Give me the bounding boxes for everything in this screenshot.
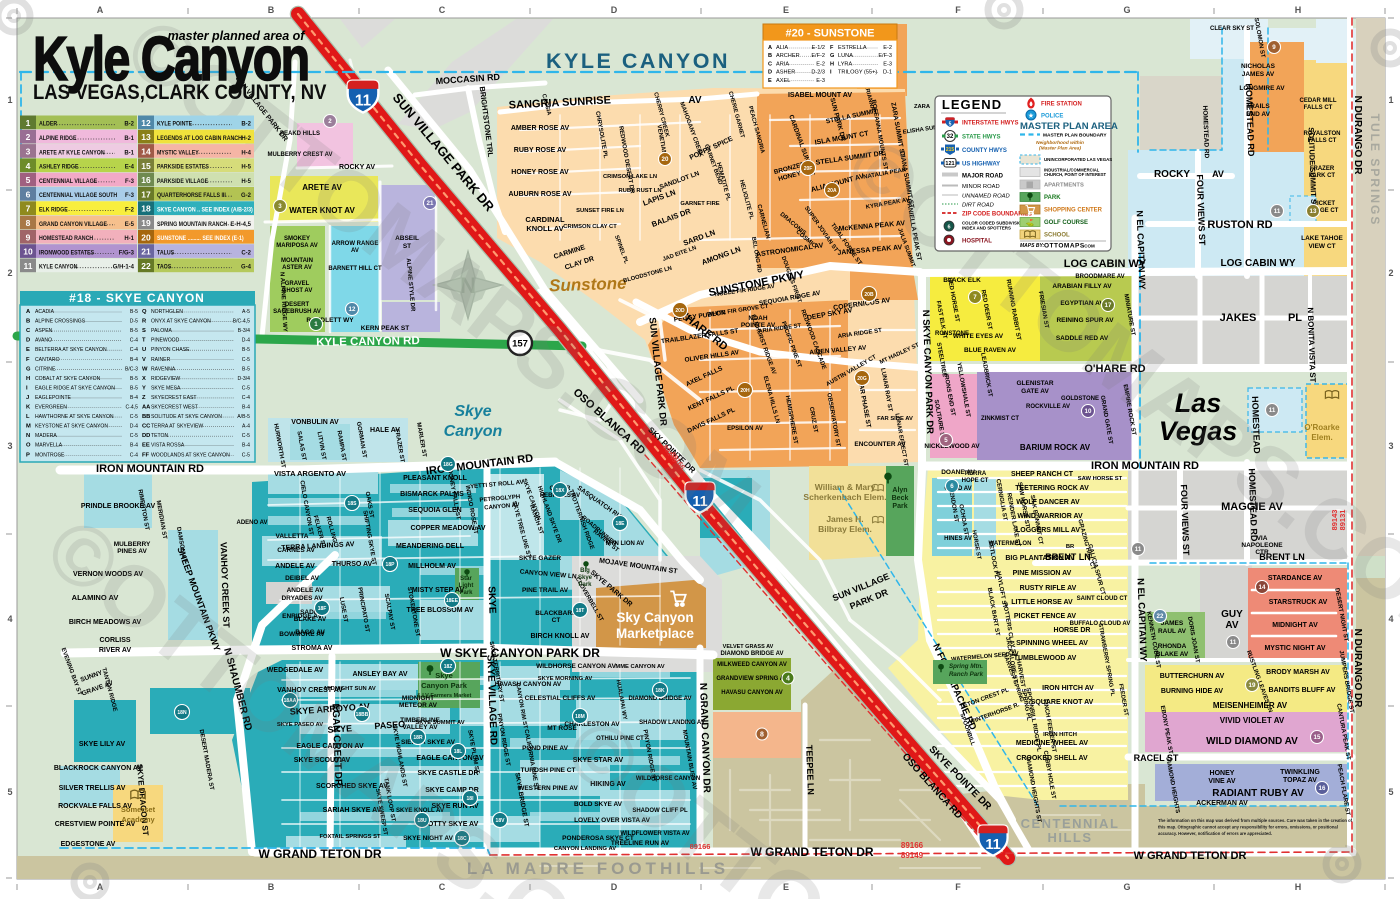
svg-text:D-3/4: D-3/4 [238, 376, 250, 382]
svg-text:MYSTIC NIGHT AV: MYSTIC NIGHT AV [1264, 645, 1325, 652]
svg-text:FALLS CT: FALLS CT [1304, 105, 1333, 111]
svg-text:18K: 18K [655, 688, 665, 694]
svg-text:89149: 89149 [901, 851, 924, 860]
svg-text:20F: 20F [804, 166, 813, 172]
svg-text:B-5: B-5 [242, 347, 250, 353]
svg-text:ZARA: ZARA [914, 104, 931, 110]
svg-text:VINE AV: VINE AV [1208, 778, 1236, 785]
svg-text:E: E [768, 78, 772, 84]
svg-text:C-4: C-4 [130, 452, 138, 458]
svg-text:18S: 18S [348, 501, 358, 507]
svg-text:PARKSIDE VILLAGE: PARKSIDE VILLAGE [157, 178, 208, 185]
svg-text:D-5: D-5 [130, 318, 138, 324]
svg-text:W: W [142, 366, 148, 372]
svg-text:SMOKEY: SMOKEY [284, 236, 310, 242]
svg-text:BIG PLANTATION AV: BIG PLANTATION AV [1005, 555, 1075, 562]
svg-text:VONBULIN AV: VONBULIN AV [291, 419, 339, 426]
svg-text:B-5: B-5 [130, 385, 138, 391]
svg-text:18F: 18F [318, 606, 327, 612]
svg-text:ACKERMAN AV: ACKERMAN AV [1196, 800, 1248, 807]
svg-text:LAS VEGAS,CLARK COUNTY, NV: LAS VEGAS,CLARK COUNTY, NV [33, 81, 327, 104]
svg-text:TWINKLING: TWINKLING [1280, 769, 1320, 776]
svg-text:MISTY STEP AV: MISTY STEP AV [412, 587, 465, 594]
svg-text:A-4: A-4 [242, 423, 250, 429]
svg-text:KERN PEAK ST: KERN PEAK ST [361, 325, 409, 332]
svg-text:Scherkenbach Elem.: Scherkenbach Elem. [803, 492, 886, 502]
svg-text:HOSPITAL: HOSPITAL [962, 239, 992, 245]
svg-text:1: 1 [7, 95, 12, 105]
svg-text:HAVASU CANYON AV: HAVASU CANYON AV [495, 681, 562, 688]
svg-text:Skye: Skye [578, 575, 593, 581]
svg-text:A-5: A-5 [242, 309, 250, 315]
svg-text:TEETERING ROCK AV: TEETERING ROCK AV [1015, 485, 1089, 492]
svg-text:Z: Z [142, 395, 146, 401]
svg-text:C-4: C-4 [130, 337, 138, 343]
svg-text:A: A [97, 5, 104, 15]
svg-text:SPRING MOUNTAIN RANCH: SPRING MOUNTAIN RANCH [157, 221, 227, 228]
svg-text:N: N [26, 433, 30, 439]
svg-text:Park: Park [892, 503, 907, 510]
svg-text:89166: 89166 [901, 841, 924, 850]
svg-text:GOLF COURSE: GOLF COURSE [1044, 220, 1088, 226]
svg-text:15: 15 [1314, 734, 1321, 741]
svg-text:11: 11 [1274, 208, 1281, 215]
svg-text:B-5: B-5 [242, 366, 250, 372]
svg-text:MILKWEED CANYON AV: MILKWEED CANYON AV [717, 662, 787, 668]
svg-text:B: B [268, 5, 275, 15]
svg-text:11: 11 [1230, 639, 1237, 646]
svg-text:MASTER PLAN AREA: MASTER PLAN AREA [1020, 121, 1118, 132]
svg-text:HAVASU CANYON AV: HAVASU CANYON AV [721, 690, 782, 696]
svg-text:Canyon: Canyon [444, 423, 503, 440]
svg-text:2: 2 [26, 132, 31, 142]
svg-text:SAINT CLOUD CT: SAINT CLOUD CT [1077, 596, 1128, 602]
svg-text:CLEAR SKY ST: CLEAR SKY ST [1210, 26, 1254, 32]
svg-text:D: D [26, 338, 30, 344]
svg-text:HOMESTEAD RANCH: HOMESTEAD RANCH [39, 236, 93, 243]
svg-text:HONEY: HONEY [1210, 770, 1235, 777]
svg-text:B/C-4,5: B/C-4,5 [233, 318, 250, 324]
svg-text:LAKE TAHOE: LAKE TAHOE [1301, 235, 1343, 242]
svg-text:VALLETTA: VALLETTA [276, 533, 309, 540]
svg-text:SUNSET FIRE LN: SUNSET FIRE LN [576, 208, 624, 214]
svg-text:E-2: E-2 [816, 61, 825, 67]
svg-text:H: H [1295, 5, 1302, 15]
svg-text:KYLE CANYON RD: KYLE CANYON RD [316, 335, 420, 349]
svg-text:B-1: B-1 [124, 149, 134, 156]
svg-text:James H.: James H. [826, 514, 863, 524]
svg-text:METEOR AV: METEOR AV [399, 702, 438, 709]
svg-text:ASTER AV: ASTER AV [282, 265, 312, 271]
svg-text:SKYE LILY AV: SKYE LILY AV [79, 741, 126, 748]
svg-text:A/B-5: A/B-5 [237, 414, 250, 420]
svg-text:ANDELE AV: ANDELE AV [287, 587, 325, 594]
svg-text:BLACKBARK: BLACKBARK [535, 610, 577, 617]
svg-text:AV: AV [1225, 620, 1238, 631]
svg-text:F: F [955, 882, 961, 892]
svg-text:LEGENDS AT LOG CABIN RANCH: LEGENDS AT LOG CABIN RANCH [157, 136, 242, 143]
svg-text:CT: CT [552, 617, 561, 624]
svg-text:AXEL: AXEL [776, 78, 790, 84]
svg-text:JAMES AV: JAMES AV [1242, 71, 1275, 78]
svg-text:Bilbray Elem.: Bilbray Elem. [818, 524, 872, 534]
svg-text:VIEW CT: VIEW CT [1308, 243, 1335, 250]
svg-text:MAPS BY:: MAPS BY: [1020, 243, 1045, 249]
svg-text:#18 - SKYE CANYON: #18 - SKYE CANYON [69, 291, 205, 305]
svg-text:2: 2 [328, 118, 332, 125]
svg-text:WILDHORSE CANYON AV: WILDHORSE CANYON AV [536, 663, 616, 670]
svg-text:BR: BR [1066, 544, 1075, 550]
svg-text:COUNTY HWYS: COUNTY HWYS [962, 148, 1007, 154]
svg-text:V: V [142, 357, 146, 363]
svg-text:B-1: B-1 [124, 135, 134, 142]
svg-text:PLEASANT KNOLL: PLEASANT KNOLL [403, 475, 468, 482]
svg-text:C-5: C-5 [130, 433, 138, 439]
svg-text:QUARTERHORSE FALLS III: QUARTERHORSE FALLS III [157, 193, 226, 200]
svg-text:6: 6 [26, 189, 31, 199]
svg-text:ENRIDGE AV: ENRIDGE AV [282, 613, 322, 620]
svg-text:C-5: C-5 [242, 385, 250, 391]
svg-text:D: D [768, 70, 772, 76]
svg-text:W SKYE CANYON PARK DR: W SKYE CANYON PARK DR [440, 646, 600, 660]
svg-text:CRIMSON CLAY CT: CRIMSON CLAY CT [563, 224, 617, 230]
svg-text:12: 12 [349, 306, 356, 313]
svg-text:FIRE STATION: FIRE STATION [1041, 102, 1082, 108]
svg-text:DRYADES AV: DRYADES AV [281, 595, 323, 602]
svg-text:STARSTRUCK AV: STARSTRUCK AV [1269, 599, 1328, 606]
svg-text:Star: Star [460, 576, 472, 582]
svg-text:E-1/2: E-1/2 [812, 45, 825, 51]
svg-text:3: 3 [1388, 441, 1393, 451]
svg-text:CITRINE: CITRINE [35, 366, 56, 372]
svg-text:Park: Park [459, 590, 473, 596]
svg-text:3: 3 [7, 441, 12, 451]
svg-text:MEISENHEIMER AV: MEISENHEIMER AV [1213, 701, 1288, 710]
svg-text:INTERSTATE HWYS: INTERSTATE HWYS [962, 121, 1018, 127]
svg-text:PL: PL [1288, 312, 1302, 324]
svg-text:W GRAND TETON DR: W GRAND TETON DR [258, 847, 381, 861]
svg-text:CENTENNIAL VILLAGE SOUTH: CENTENNIAL VILLAGE SOUTH [39, 193, 117, 200]
svg-text:TRILOGY (55+): TRILOGY (55+) [838, 70, 877, 76]
svg-text:5: 5 [26, 175, 31, 185]
svg-text:E-3: E-3 [883, 61, 892, 67]
svg-text:F-3: F-3 [125, 178, 134, 185]
svg-text:AV: AV [688, 95, 701, 106]
svg-text:8: 8 [26, 218, 31, 228]
svg-text:RUSTY RIFLE AV: RUSTY RIFLE AV [1020, 585, 1077, 592]
svg-text:D: D [611, 882, 618, 892]
svg-text:EDGESTONE AV: EDGESTONE AV [61, 841, 116, 848]
svg-text:F-2: F-2 [125, 206, 134, 213]
svg-text:CARNES AV: CARNES AV [277, 547, 315, 554]
svg-text:17: 17 [141, 189, 151, 199]
svg-text:NICKLEWOOD AV: NICKLEWOOD AV [924, 443, 980, 450]
svg-text:6: 6 [947, 225, 950, 231]
svg-text:16: 16 [1319, 785, 1326, 792]
svg-text:5: 5 [1388, 787, 1393, 797]
svg-text:GARNET FIRE: GARNET FIRE [680, 201, 719, 207]
svg-text:E-3: E-3 [816, 78, 825, 84]
svg-text:AA: AA [142, 405, 151, 411]
svg-text:D-4: D-4 [130, 423, 138, 429]
svg-text:UNINCORPORATED LAS VEGAS: UNINCORPORATED LAS VEGAS [1044, 157, 1112, 162]
svg-text:RUBY ROSE AV: RUBY ROSE AV [514, 147, 567, 154]
svg-text:14: 14 [141, 147, 151, 157]
svg-text:#20 - SUNSTONE: #20 - SUNSTONE [785, 28, 874, 40]
svg-text:GRAVEL: GRAVEL [285, 281, 310, 287]
svg-text:RUBY RUST LN: RUBY RUST LN [618, 188, 661, 194]
svg-text:G/H-1-4: G/H-1-4 [113, 263, 135, 270]
svg-text:PARK: PARK [1044, 195, 1061, 201]
svg-text:SHOPPING CENTER: SHOPPING CENTER [1044, 208, 1103, 214]
svg-text:18L: 18L [454, 749, 463, 755]
svg-text:4: 4 [786, 676, 790, 683]
svg-text:SHEEP RANCH CT: SHEEP RANCH CT [1011, 471, 1074, 478]
svg-text:KYLE POINTE: KYLE POINTE [157, 121, 192, 128]
svg-text:BLACKROCK CANYON AV: BLACKROCK CANYON AV [54, 765, 143, 772]
svg-text:AVANO: AVANO [35, 337, 52, 343]
svg-text:OTTOMAPS: OTTOMAPS [1044, 243, 1085, 250]
svg-text:B: B [768, 53, 772, 59]
svg-text:21: 21 [141, 247, 151, 257]
svg-text:ALIA: ALIA [776, 45, 788, 51]
svg-text:SKYECREST WEST: SKYECREST WEST [151, 404, 199, 410]
svg-text:B-4: B-4 [130, 395, 138, 401]
svg-text:RAUL AV: RAUL AV [1158, 628, 1187, 635]
svg-text:BELTERRA AT SKYE CANYON: BELTERRA AT SKYE CANYON [35, 347, 107, 353]
svg-text:EVERGREEN: EVERGREEN [35, 404, 67, 410]
svg-text:MARIPOSA AV: MARIPOSA AV [276, 243, 317, 249]
svg-text:G-4: G-4 [241, 263, 251, 270]
svg-text:COBALT AT SKYE CANYON: COBALT AT SKYE CANYON [35, 376, 100, 382]
svg-text:LYRA: LYRA [838, 61, 852, 67]
svg-text:RONSTONE: RONSTONE [935, 331, 969, 337]
svg-text:1: 1 [1388, 95, 1393, 105]
svg-text:B-4: B-4 [130, 357, 138, 363]
svg-text:KYLE CANYON: KYLE CANYON [546, 49, 730, 73]
svg-text:H-1: H-1 [124, 235, 134, 242]
svg-text:POND PINE AV: POND PINE AV [522, 745, 569, 752]
svg-text:ROCKY: ROCKY [1154, 169, 1190, 180]
svg-text:12: 12 [141, 118, 151, 128]
svg-text:LOGGERS MILL AV: LOGGERS MILL AV [1016, 527, 1080, 534]
svg-text:SKYE SUMMIT AV: SKYE SUMMIT AV [415, 720, 464, 726]
svg-text:11: 11 [1135, 546, 1142, 553]
svg-text:EPSILON AV: EPSILON AV [727, 426, 763, 432]
svg-text:Elem.: Elem. [1311, 433, 1332, 442]
svg-text:C: C [439, 5, 446, 15]
svg-text:PINE TRAIL AV: PINE TRAIL AV [522, 587, 569, 594]
svg-text:GUY: GUY [1221, 609, 1243, 620]
svg-text:L: L [26, 414, 30, 420]
svg-text:INDEX AND SPOTTERS: INDEX AND SPOTTERS [962, 226, 1011, 231]
svg-text:Y: Y [142, 385, 146, 391]
svg-text:END AV: END AV [1246, 111, 1271, 118]
svg-text:Neighborhood within: Neighborhood within [1036, 140, 1084, 146]
svg-text:Q: Q [142, 309, 147, 315]
svg-text:SHADOW LANDING AV: SHADOW LANDING AV [639, 720, 705, 726]
svg-text:TULE SPRINGS: TULE SPRINGS [1368, 114, 1382, 227]
svg-text:CRIMSON LAKE LN: CRIMSON LAKE LN [603, 174, 657, 180]
svg-text:ESTRELLA: ESTRELLA [838, 45, 867, 51]
svg-text:GATE AV: GATE AV [1021, 388, 1049, 395]
svg-text:18T: 18T [576, 608, 585, 614]
svg-text:E-5: E-5 [125, 220, 135, 227]
svg-text:RAINER: RAINER [151, 357, 170, 363]
svg-text:J: J [26, 395, 29, 401]
svg-text:ROCKVILLE AV: ROCKVILLE AV [1026, 404, 1070, 410]
svg-text:RADIANT RUBY AV: RADIANT RUBY AV [1212, 788, 1304, 799]
svg-text:JAKES: JAKES [1220, 312, 1257, 324]
svg-text:DEIBEL AV: DEIBEL AV [285, 575, 319, 582]
svg-text:M: M [26, 424, 31, 430]
svg-text:STATE HWYS: STATE HWYS [962, 135, 1000, 141]
svg-text:W GRAND TETON DR: W GRAND TETON DR [1134, 850, 1247, 862]
svg-text:5: 5 [944, 437, 948, 444]
svg-text:HORSE DR: HORSE DR [1054, 627, 1091, 634]
svg-text:9: 9 [1272, 44, 1276, 51]
svg-text:O: O [26, 443, 31, 449]
svg-text:E: E [26, 347, 30, 353]
svg-text:F: F [830, 45, 834, 51]
svg-text:B-2: B-2 [241, 120, 251, 127]
svg-text:18R: 18R [413, 735, 423, 741]
svg-text:Spring Mtn.: Spring Mtn. [949, 663, 983, 670]
svg-text:NICHOLAS: NICHOLAS [1241, 63, 1276, 70]
svg-text:IRON HITCH AV: IRON HITCH AV [1042, 685, 1094, 692]
svg-text:Alyn: Alyn [892, 487, 907, 494]
svg-text:TREE BLOSSOM AV: TREE BLOSSOM AV [407, 607, 474, 614]
svg-text:18M: 18M [575, 714, 585, 720]
svg-text:Ranch Park: Ranch Park [949, 671, 984, 678]
svg-text:19: 19 [1249, 682, 1256, 689]
svg-text:BARIUM ROCK AV: BARIUM ROCK AV [1020, 443, 1091, 452]
svg-text:SPINNING WHEEL AV: SPINNING WHEEL AV [1016, 640, 1088, 647]
svg-text:3: 3 [26, 147, 31, 157]
svg-text:ASHER: ASHER [776, 70, 795, 76]
svg-text:P: P [26, 452, 30, 458]
svg-text:BLAKE AV: BLAKE AV [1156, 651, 1189, 658]
svg-text:C-5: C-5 [242, 433, 250, 439]
svg-text:GRANDVIEW SPRING AV: GRANDVIEW SPRING AV [716, 676, 787, 682]
svg-text:20D: 20D [675, 308, 685, 314]
svg-text:BLUE RAVEN AV: BLUE RAVEN AV [964, 347, 1017, 354]
svg-text:5: 5 [949, 121, 952, 127]
svg-text:Beck: Beck [892, 495, 909, 502]
svg-text:16: 16 [141, 175, 151, 185]
svg-text:HOPE CT: HOPE CT [962, 478, 989, 484]
svg-text:2: 2 [7, 268, 12, 278]
svg-text:VIVID VIOLET AV: VIVID VIOLET AV [1220, 716, 1285, 725]
svg-text:B-4: B-4 [242, 442, 250, 448]
svg-text:The information on this map wa: The information on this map was derived … [1158, 818, 1353, 823]
svg-text:F: F [26, 357, 30, 363]
svg-text:22: 22 [1157, 613, 1164, 620]
svg-text:14: 14 [1259, 584, 1266, 591]
svg-text:SUNSTONE ......... SEE INDEX (: SUNSTONE ......... SEE INDEX (E-1) [157, 236, 244, 243]
svg-text:N DURANGO DR: N DURANGO DR [1352, 629, 1363, 709]
svg-text:ARCHER: ARCHER [776, 53, 800, 59]
svg-text:BUTTERCHURN AV: BUTTERCHURN AV [1160, 673, 1225, 680]
svg-text:13: 13 [141, 132, 151, 142]
svg-text:GLENISTAR: GLENISTAR [1016, 380, 1053, 387]
svg-text:TOPAZ AV: TOPAZ AV [1283, 777, 1317, 784]
svg-text:18: 18 [141, 204, 151, 214]
svg-text:MEANDERING DELL: MEANDERING DELL [396, 543, 465, 550]
svg-text:IRON HITCH: IRON HITCH [1043, 732, 1077, 738]
svg-text:Light: Light [459, 583, 474, 589]
svg-text:ANSLEY BAY AV: ANSLEY BAY AV [352, 671, 407, 678]
svg-text:VELVET GRASS AV: VELVET GRASS AV [723, 644, 774, 650]
svg-text:ZINKMIST CT: ZINKMIST CT [981, 416, 1019, 422]
svg-text:32: 32 [947, 134, 954, 140]
svg-text:B/C-3: B/C-3 [125, 366, 138, 372]
svg-text:ADENO AV: ADENO AV [236, 520, 267, 526]
svg-text:Academy: Academy [121, 815, 155, 824]
svg-text:ANDELE AV: ANDELE AV [275, 563, 315, 570]
svg-text:10: 10 [23, 247, 33, 257]
svg-text:MME CANYON AV: MME CANYON AV [615, 664, 664, 670]
svg-text:C-5: C-5 [130, 414, 138, 420]
svg-text:18E: 18E [616, 521, 626, 527]
svg-text:RHONDA: RHONDA [1158, 643, 1187, 650]
svg-text:C-4,5: C-4,5 [126, 404, 138, 410]
svg-text:this map. Ottographic cannot a: this map. Ottographic cannot accept any … [1158, 825, 1338, 830]
svg-text:Somerset: Somerset [121, 805, 156, 814]
svg-text:APARTMENTS: APARTMENTS [1044, 183, 1084, 189]
svg-text:CHURCH, POINT OF INTEREST: CHURCH, POINT OF INTEREST [1044, 172, 1107, 177]
svg-text:TIERRA: TIERRA [964, 471, 987, 477]
svg-text:C-5: C-5 [242, 452, 250, 458]
svg-text:SILVER TRELLIS AV: SILVER TRELLIS AV [59, 785, 126, 792]
svg-text:F-3: F-3 [125, 192, 134, 199]
svg-text:E/F-2: E/F-2 [811, 53, 825, 59]
svg-text:MILLHOLM AV: MILLHOLM AV [408, 563, 456, 570]
svg-text:T: T [142, 338, 146, 344]
svg-text:G: G [26, 366, 31, 372]
svg-text:MAJOR ROAD: MAJOR ROAD [962, 174, 1004, 180]
svg-text:E-H-4,5: E-H-4,5 [230, 220, 251, 227]
svg-text:PARKSIDE ESTATES: PARKSIDE ESTATES [157, 164, 209, 171]
svg-text:.COM: .COM [1083, 244, 1095, 249]
svg-text:accuracy. However, notificatio: accuracy. However, notification of error… [1158, 831, 1272, 836]
svg-text:PINEWOOD: PINEWOOD [151, 337, 179, 343]
svg-text:G-2: G-2 [241, 192, 251, 199]
svg-text:H: H [830, 61, 834, 67]
svg-text:ALPINE RIDGE: ALPINE RIDGE [39, 136, 77, 143]
svg-text:20: 20 [662, 156, 669, 163]
svg-text:18N: 18N [177, 710, 187, 716]
svg-text:G: G [1123, 5, 1130, 15]
svg-text:1: 1 [26, 118, 31, 128]
svg-text:E-4: E-4 [125, 163, 135, 170]
svg-text:AV: AV [1212, 169, 1224, 179]
svg-text:18EE: 18EE [446, 598, 459, 604]
svg-text:B-3/4: B-3/4 [238, 328, 250, 334]
svg-text:18Z: 18Z [444, 664, 453, 670]
svg-text:MIDNIGHT AV: MIDNIGHT AV [1272, 622, 1318, 629]
svg-text:TETON: TETON [151, 433, 168, 439]
svg-text:11: 11 [1269, 407, 1276, 414]
svg-text:THURSO AV: THURSO AV [332, 561, 373, 568]
svg-text:5: 5 [7, 787, 12, 797]
svg-text:20G: 20G [857, 376, 867, 382]
svg-text:E: E [783, 5, 789, 15]
svg-text:BB: BB [142, 414, 150, 420]
svg-text:MINOR ROAD: MINOR ROAD [962, 184, 1000, 190]
svg-text:GRAND CANYON VILLAGE: GRAND CANYON VILLAGE [39, 221, 107, 228]
svg-text:18X: 18X [556, 488, 566, 494]
